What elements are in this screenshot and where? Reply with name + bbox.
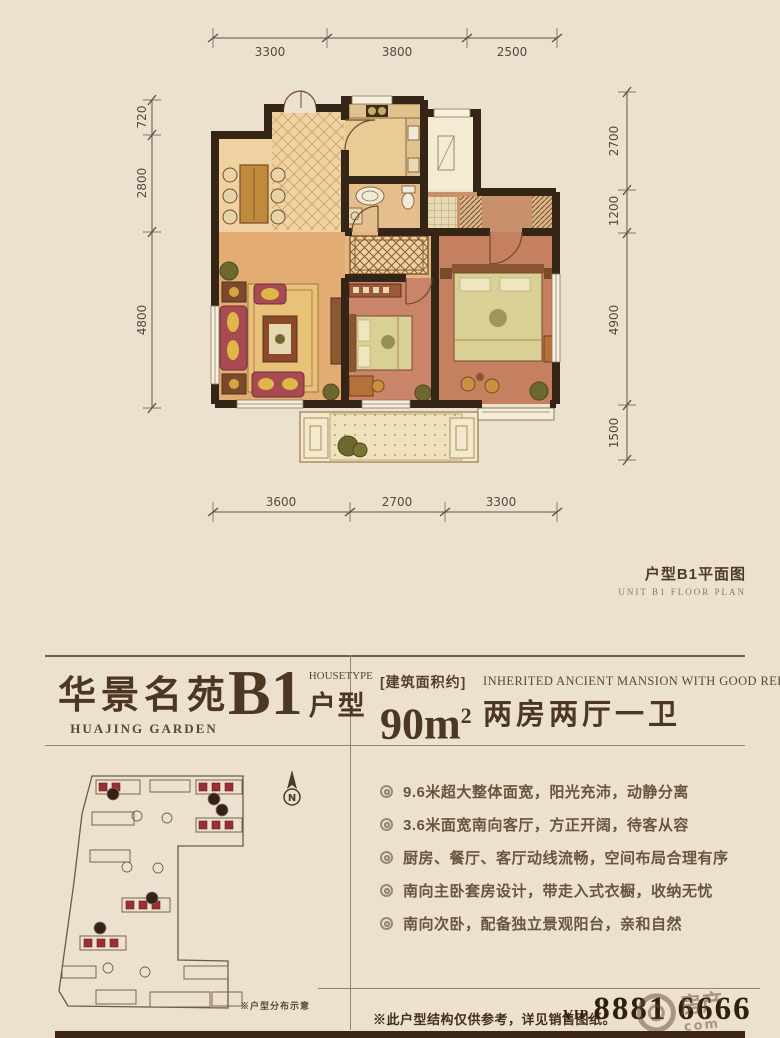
unit-block: B1 HOUSETYPE 户型 [228,658,373,728]
dim-left-2: 2800 [135,168,149,199]
brand-name-cn: 华景名苑 [46,664,242,719]
balcony [300,412,478,462]
dim-right-2: 1200 [607,196,621,227]
feature-item: 3.6米面宽南向客厅，方正开阔，待客从容 [380,808,729,841]
dim-bottom-3: 3300 [486,495,517,509]
plan-caption-en: UNIT B1 FLOOR PLAN [618,587,746,597]
north-label: N [288,793,296,804]
ring-bullet-icon [380,917,393,930]
layout-cn: 两房两厅一卫 [483,691,681,733]
plan-caption-cn: 户型B1平面图 [618,563,746,584]
area-value: 90m2 [380,694,472,747]
unit-type-en: HOUSETYPE [309,670,373,682]
feature-item: 9.6米超大整体面宽，阳光充沛，动静分离 [380,775,729,808]
site-trees [103,811,172,977]
site-plan-caption: ※户型分布示意 [240,999,310,1012]
dim-bottom-1: 3600 [266,495,297,509]
header-top-rule [45,655,745,657]
flyer-page: 3300 3800 2500 720 2800 4800 2700 1200 4… [0,0,780,1038]
dim-left-1: 720 [135,106,149,129]
dining-set [223,165,285,224]
brand-name-en: HUAJING GARDEN [46,721,242,737]
plan-caption: 户型B1平面图 UNIT B1 FLOOR PLAN [618,563,746,597]
ring-bullet-icon [380,785,393,798]
entry-door [284,91,316,113]
ring-bullet-icon [380,884,393,897]
bottom-bar [55,1031,745,1038]
brand-block: 华景名苑 HUAJING GARDEN [46,664,242,737]
feature-item: 厨房、餐厅、客厅动线流畅，空间布局合理有序 [380,841,729,874]
feature-item: 南向次卧，配备独立景观阳台，亲和自然 [380,907,729,940]
unit-code: B1 [228,658,303,728]
dim-bottom-2: 2700 [382,495,413,509]
unit-type-cn: 户型 [309,684,373,723]
dim-right-1: 2700 [607,126,621,157]
feature-item: 南向主卧套房设计，带走入式衣橱，收纳无忧 [380,874,729,907]
ring-bullet-icon [380,818,393,831]
ring-bullet-icon [380,851,393,864]
dim-top-3: 2500 [497,45,528,59]
hallway-rug [350,236,428,274]
dim-top-1: 3300 [255,45,286,59]
dim-top-2: 3800 [382,45,413,59]
area-block: [建筑面积约] 90m2 [380,672,472,747]
dim-right-3: 4900 [607,305,621,336]
watermark: 房产 com [629,968,780,1038]
floor-plan: 3300 3800 2500 720 2800 4800 2700 1200 4… [0,0,780,620]
watermark-cn: 房产 [678,989,724,1019]
site-buildings-highlighted [84,783,233,947]
feature-list: 9.6米超大整体面宽，阳光充沛，动静分离 3.6米面宽南向客厅，方正开阔，待客从… [380,775,729,940]
dim-left-3: 4800 [135,305,149,336]
slogan-en: INHERITED ANCIENT MANSION WITH GOOD REPU… [483,674,780,689]
vip-label: VIP. [563,1008,591,1024]
area-label: [建筑面积约] [380,672,472,692]
north-arrow: N [284,770,300,805]
bay-window [478,408,554,420]
storage-floor [426,113,477,190]
site-plan: N [55,762,345,1020]
dim-right-4: 1500 [607,418,621,449]
